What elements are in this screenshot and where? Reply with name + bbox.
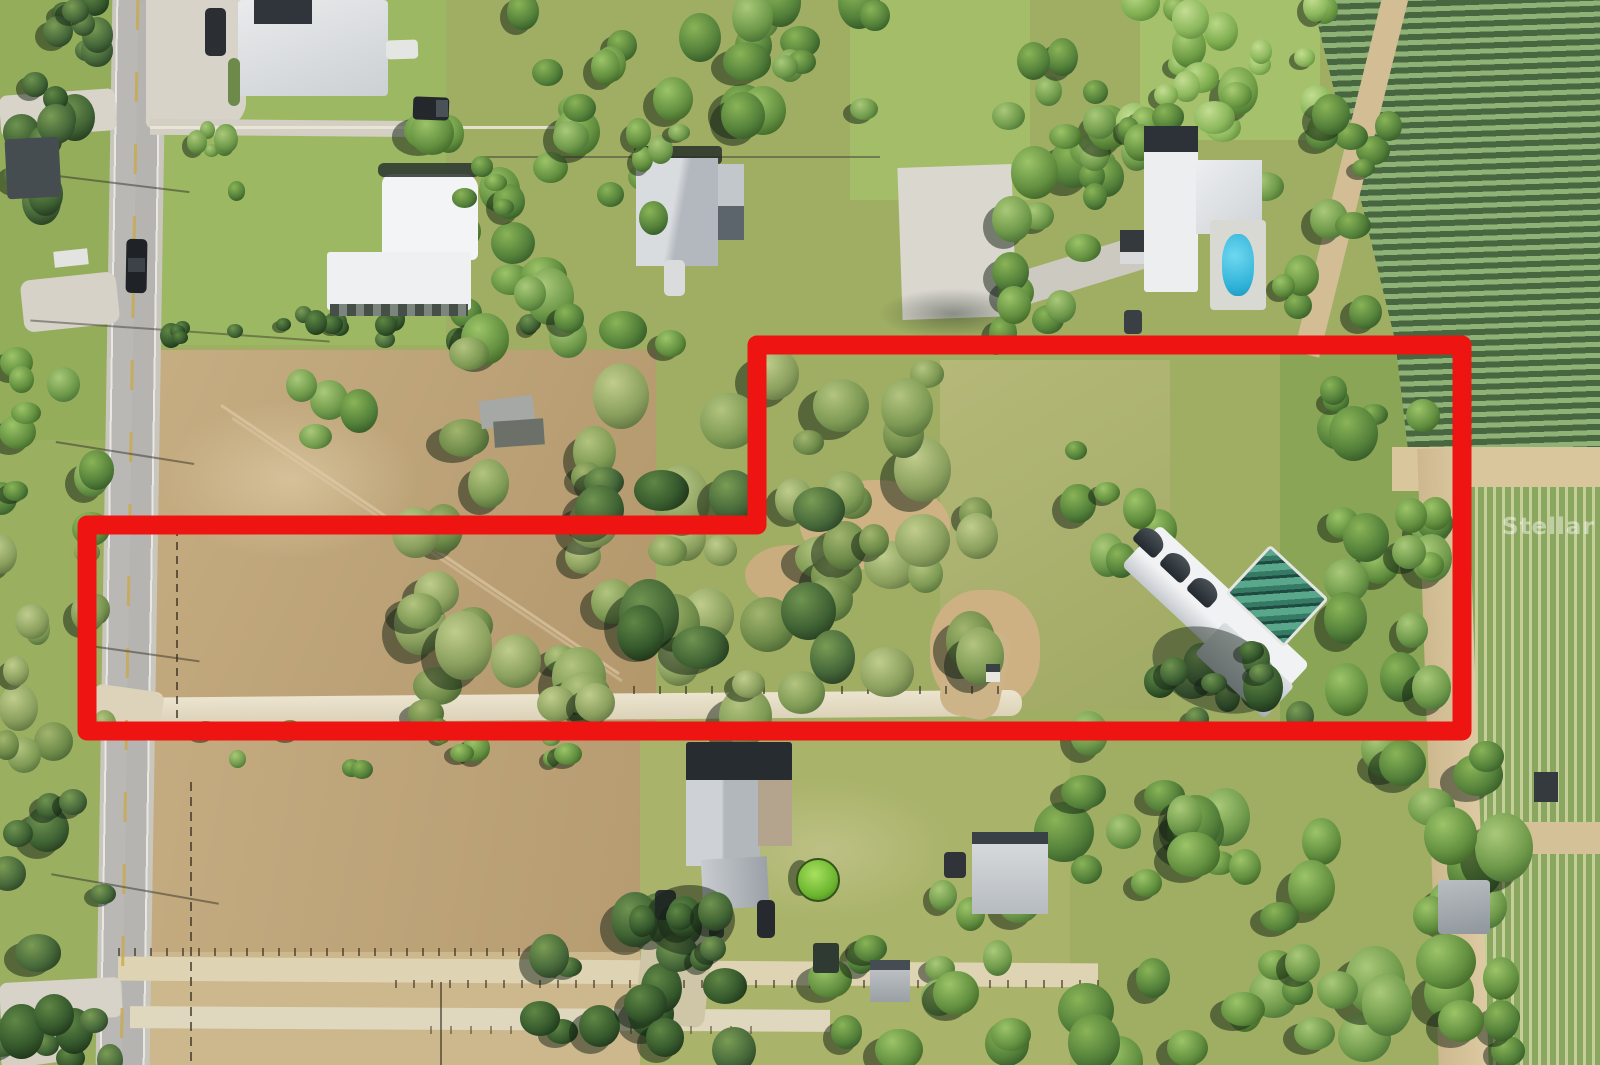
- central-forest-tree: [491, 634, 542, 688]
- forest-top-center-tree: [514, 276, 546, 311]
- trees-left-mid-tree: [79, 450, 114, 489]
- forest-bottom-right-tree: [1061, 775, 1105, 809]
- shrubs-top-lawn-tree: [187, 130, 207, 154]
- hedgerow-mid-tree: [172, 331, 188, 344]
- trees-left-of-house3-tree: [626, 118, 651, 148]
- forest-bottom-right-tree: [1294, 1017, 1335, 1050]
- mini-shed-grey-edge: [870, 960, 910, 970]
- fence-vertical-field: [176, 528, 178, 738]
- poolhouse-pool: [1222, 234, 1254, 296]
- central-forest-dark-core-tree: [709, 470, 756, 522]
- forest-bottom-right-tree: [1167, 1030, 1208, 1065]
- central-forest-tree: [748, 348, 799, 400]
- forest-top-center-tree: [563, 94, 595, 122]
- central-forest-tree: [397, 593, 442, 629]
- central-forest-dark-core-tree: [634, 470, 689, 511]
- hedge-top-left-tree: [62, 0, 89, 23]
- mls-watermark: Stellar MLS: [1502, 514, 1600, 544]
- trees-left-of-house3-tree: [668, 124, 690, 141]
- forest-top-center-tree: [532, 59, 562, 86]
- shrubs-top-lawn-tree: [228, 181, 245, 200]
- poolhouse-shed-roof: [1120, 252, 1144, 264]
- central-forest-tree: [704, 535, 737, 566]
- dirt-field-light-patch: [160, 400, 420, 560]
- truck-cab: [128, 258, 145, 272]
- trees-crop-edge-tree: [1312, 94, 1351, 135]
- trees-left-of-house3-tree: [597, 182, 624, 207]
- hedgerow-mid-tree: [276, 318, 291, 331]
- trees-poolhouse-tree: [1083, 183, 1107, 210]
- trees-bottom-center-2-tree: [991, 1018, 1030, 1050]
- central-forest-tree: [700, 393, 758, 449]
- forest-bottom-right-tree: [1317, 971, 1357, 1008]
- trees-bottom-center-2-tree: [929, 880, 956, 911]
- trees-right-of-house-tree: [1412, 665, 1451, 710]
- car-poolhouse: [1124, 310, 1142, 334]
- trees-top-right-tree: [1194, 101, 1235, 134]
- forest-bottom-right-tree: [1221, 992, 1265, 1026]
- trees-left-bottom-tree: [34, 994, 74, 1036]
- shrubs-below-boundary-tree: [450, 744, 473, 762]
- trees-around-pad-tree: [1047, 38, 1077, 76]
- shrubs-below-boundary-tree: [229, 750, 246, 768]
- forest-bottom-right-tree: [1438, 1000, 1484, 1042]
- forest-top-center-tree: [591, 49, 620, 85]
- trees-poolhouse-tree: [1083, 105, 1116, 139]
- well-cap: [986, 664, 1000, 672]
- forest-top-center-tree: [599, 311, 647, 349]
- trees-right-of-house-tree: [1396, 612, 1427, 648]
- trees-crop-corner-tree: [1294, 48, 1315, 66]
- forest-bottom-right-tree: [1068, 1014, 1120, 1065]
- trees-bottom-center-1-tree: [703, 968, 748, 1003]
- central-forest-tree: [881, 378, 933, 437]
- barn-shadow-band: [378, 163, 480, 177]
- trees-crop-corner-tree: [1250, 39, 1272, 64]
- house1-dark-section: [254, 0, 312, 24]
- trees-left-bottom-tree: [15, 934, 61, 971]
- forest-bottom-right-tree: [1288, 860, 1335, 915]
- forest-top-center-tree: [653, 77, 693, 121]
- right-edge-shed: [1534, 772, 1558, 802]
- far-left-house: [4, 137, 61, 200]
- trees-left-mid-tree: [47, 367, 80, 402]
- forest-top-center-tree: [553, 121, 590, 153]
- central-forest-dark-core-tree: [575, 485, 624, 534]
- forest-bottom-right-tree: [1469, 741, 1503, 772]
- barn-lower-roof: [327, 252, 471, 310]
- trees-over-main-house-tree: [1239, 641, 1264, 661]
- trees-left-mid-tree: [72, 512, 109, 546]
- trees-left-mid-tree: [3, 481, 28, 500]
- trees-right-of-house-tree: [1343, 513, 1390, 561]
- fence-vertical-b2: [440, 982, 442, 1065]
- trees-right-of-house-tree: [1392, 535, 1426, 569]
- fence-vertical-bottom: [190, 782, 192, 1065]
- trees-left-low-tree: [15, 604, 49, 639]
- central-forest-tree: [468, 459, 509, 507]
- trees-left-bottom-tree: [80, 1008, 108, 1033]
- trees-top-strip-tree: [860, 0, 889, 31]
- central-forest-tree: [895, 514, 950, 567]
- forest-bottom-right-tree: [1070, 711, 1108, 756]
- shrubs-below-boundary-tree: [193, 721, 218, 741]
- trees-bottom-center-2-tree: [875, 1029, 922, 1065]
- mini-shed-dark: [813, 943, 839, 973]
- right-lower-shed: [1438, 880, 1490, 934]
- trees-by-barn-tree: [484, 174, 506, 191]
- forest-top-center-tree: [655, 330, 686, 357]
- forest-bottom-right-tree: [1424, 807, 1477, 865]
- field-shed-debris: [493, 418, 545, 447]
- trees-right-of-house-tree: [1324, 592, 1367, 644]
- hedgerow-mid-tree: [305, 310, 326, 335]
- trees-left-bottom-tree: [90, 884, 115, 904]
- trees-crop-edge-tree: [1335, 212, 1371, 240]
- trees-bottom-center-1-tree: [520, 1001, 560, 1035]
- trees-right-of-house-tree: [1320, 376, 1347, 405]
- trees-bottom-center-1-tree: [624, 984, 666, 1023]
- barn-south-wall: [330, 304, 468, 316]
- bottom-house-dark-roof: [686, 742, 792, 782]
- fence-row-985: [395, 980, 1105, 988]
- fence-row-955: [118, 948, 568, 956]
- white-car-house3: [664, 260, 685, 296]
- dirt-field-lower: [146, 740, 666, 970]
- barn-upper-roof: [382, 174, 478, 260]
- forest-bottom-right-tree: [1379, 740, 1426, 786]
- central-forest-tree: [435, 611, 492, 680]
- central-forest-dark-core-tree: [672, 626, 728, 668]
- shrubs-top-lawn-tree: [214, 126, 238, 153]
- central-forest-tree: [956, 513, 999, 559]
- car-by-shed: [944, 852, 966, 878]
- central-forest-tree: [860, 647, 913, 697]
- central-forest-dark-core-tree: [617, 605, 664, 661]
- trees-bottom-center-2-tree: [854, 935, 887, 962]
- trees-around-pad-tree: [997, 286, 1031, 324]
- trees-top-strip-tree: [721, 92, 765, 139]
- forest-bottom-right-tree: [1416, 934, 1476, 989]
- trees-top-strip-tree: [723, 42, 771, 80]
- trees-poolhouse-tree: [1083, 80, 1109, 104]
- car-top-driveway: [205, 8, 226, 56]
- car-bottom-2: [757, 900, 775, 938]
- trees-crop-edge-tree: [1375, 111, 1402, 141]
- forest-bottom-right-tree: [1484, 1000, 1519, 1040]
- shrubs-below-boundary-tree: [429, 718, 449, 741]
- trees-bottom-center-1-tree: [646, 1018, 684, 1056]
- trees-left-low-tree: [74, 542, 100, 563]
- pickup-bed-lawn: [436, 100, 448, 117]
- trees-over-main-house-tree: [1201, 673, 1227, 693]
- white-van: [386, 39, 419, 59]
- poolhouse-dark-cap: [1144, 126, 1198, 152]
- forest-bottom-right-tree: [1167, 832, 1220, 877]
- trees-left-low-tree: [93, 710, 116, 737]
- central-forest-tree: [859, 524, 889, 558]
- trees-around-pad-tree: [992, 196, 1031, 242]
- trees-right-of-house-tree: [1329, 406, 1378, 461]
- central-forest-dark-core-tree: [810, 630, 855, 684]
- shed-bottom-edge: [972, 832, 1048, 844]
- bottom-house-main-roof: [686, 780, 760, 866]
- trees-left-mid-tree: [9, 366, 34, 393]
- trees-right-of-house-tree: [1325, 663, 1368, 716]
- trees-over-bottom-house-tree: [629, 905, 655, 936]
- central-forest-tree: [793, 430, 824, 455]
- shed-bottom-roof: [972, 832, 1048, 914]
- house1-garden-bed: [228, 58, 240, 106]
- trees-crop-edge-tree: [1349, 295, 1382, 329]
- forest-bottom-right-tree: [1483, 957, 1519, 1000]
- trees-by-barn-tree: [471, 156, 492, 176]
- trees-bottom-center-1-tree: [712, 1027, 755, 1065]
- green-pool-circle: [796, 858, 840, 902]
- central-forest-tree: [732, 670, 765, 698]
- trees-by-barn-tree: [452, 188, 477, 208]
- trees-bottom-center-2-tree: [933, 971, 978, 1015]
- forest-bottom-right-tree: [1475, 813, 1533, 882]
- central-forest-tree: [648, 536, 686, 566]
- central-forest-tree: [593, 363, 649, 430]
- trees-over-bottom-house-tree: [698, 892, 733, 931]
- trees-over-main-house-tree: [1160, 657, 1188, 686]
- trees-left-low-tree: [71, 593, 105, 631]
- central-forest-tree: [575, 683, 615, 722]
- trees-top-strip-tree: [850, 98, 878, 120]
- forest-top-center-tree: [491, 222, 535, 264]
- bottom-house-right-wing: [758, 780, 792, 846]
- forest-top-center-tree: [554, 303, 584, 332]
- forest-bottom-right-tree: [1071, 855, 1102, 884]
- trees-right-of-house-tree: [1406, 399, 1440, 432]
- trees-around-pad-tree: [992, 102, 1025, 130]
- trees-around-pad-tree: [1011, 146, 1059, 199]
- central-forest-tree: [392, 507, 439, 558]
- forest-bottom-right-tree: [1362, 973, 1413, 1036]
- aerial-property-photo: Stellar MLS: [0, 0, 1600, 1065]
- trees-left-bottom-tree: [59, 789, 87, 815]
- trees-left-low-tree: [3, 656, 29, 686]
- house3-carport-dark: [718, 206, 744, 240]
- central-forest-tree: [813, 379, 870, 432]
- trees-around-pad-tree: [1065, 234, 1101, 262]
- central-forest-dark-core-tree: [793, 487, 845, 533]
- trees-left-bottom-tree: [3, 820, 33, 847]
- forest-bottom-right-tree: [1106, 814, 1141, 849]
- forest-bottom-right-tree: [1285, 944, 1320, 981]
